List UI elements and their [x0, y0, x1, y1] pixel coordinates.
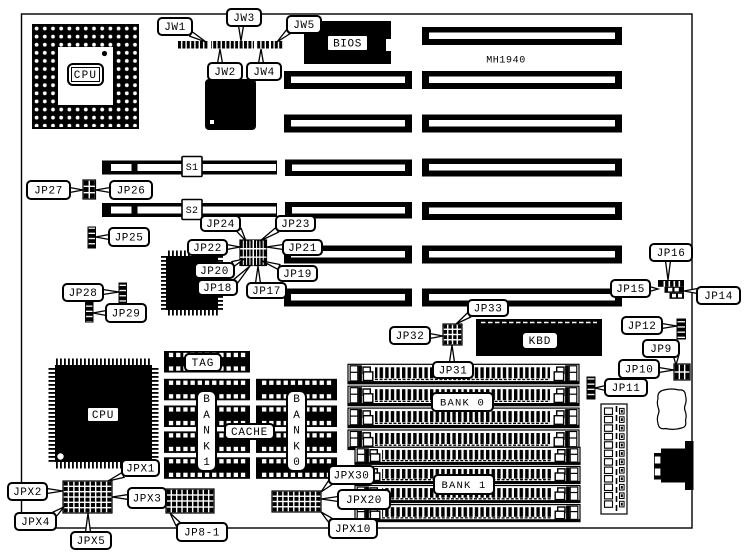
- svg-text:A: A: [203, 410, 210, 422]
- svg-text:JP25: JP25: [115, 233, 144, 245]
- svg-text:BIOS: BIOS: [333, 39, 362, 51]
- svg-text:JP8-1: JP8-1: [184, 528, 220, 540]
- svg-text:S1: S1: [186, 163, 198, 174]
- svg-text:JW4: JW4: [253, 67, 275, 79]
- svg-text:JP22: JP22: [193, 243, 222, 255]
- svg-text:JP24: JP24: [206, 219, 235, 231]
- svg-text:B: B: [203, 394, 210, 406]
- svg-text:JP23: JP23: [281, 219, 310, 231]
- svg-text:TAG: TAG: [192, 358, 215, 370]
- svg-text:0: 0: [293, 457, 300, 469]
- svg-text:N: N: [203, 426, 210, 438]
- svg-text:JP11: JP11: [612, 383, 641, 395]
- svg-text:JP12: JP12: [628, 321, 657, 333]
- svg-text:JPX2: JPX2: [13, 487, 42, 499]
- svg-text:JP15: JP15: [616, 284, 645, 296]
- svg-text:JP20: JP20: [200, 266, 229, 278]
- svg-text:CPU: CPU: [92, 410, 114, 422]
- svg-text:JW5: JW5: [293, 20, 315, 32]
- svg-text:JP32: JP32: [396, 331, 425, 343]
- svg-text:JW3: JW3: [233, 13, 255, 25]
- svg-text:KBD: KBD: [529, 336, 552, 348]
- svg-text:B: B: [293, 394, 300, 406]
- svg-text:JP29: JP29: [112, 309, 141, 321]
- svg-text:JP19: JP19: [283, 269, 312, 281]
- svg-text:JP26: JP26: [117, 186, 146, 198]
- svg-text:JP18: JP18: [203, 283, 232, 295]
- svg-text:K: K: [293, 441, 300, 453]
- svg-text:JP10: JP10: [625, 365, 654, 377]
- svg-text:JP21: JP21: [288, 243, 317, 255]
- svg-text:JPX30: JPX30: [333, 471, 369, 483]
- svg-text:JPX1: JPX1: [126, 464, 155, 476]
- svg-text:N: N: [293, 426, 300, 438]
- svg-text:K: K: [203, 441, 210, 453]
- svg-text:BANK 0: BANK 0: [440, 398, 485, 410]
- svg-text:JPX20: JPX20: [346, 495, 382, 507]
- svg-text:CPU: CPU: [74, 70, 97, 82]
- svg-text:JW2: JW2: [214, 67, 236, 79]
- svg-text:JPX4: JPX4: [21, 517, 50, 529]
- svg-text:JPX10: JPX10: [335, 524, 371, 536]
- svg-text:JP31: JP31: [439, 366, 468, 378]
- svg-text:MH1940: MH1940: [486, 56, 526, 67]
- svg-text:JW1: JW1: [164, 22, 186, 34]
- svg-text:JPX3: JPX3: [133, 494, 162, 506]
- svg-text:1: 1: [203, 457, 210, 469]
- svg-text:CACHE: CACHE: [231, 427, 268, 439]
- svg-text:JP33: JP33: [474, 304, 503, 316]
- svg-text:A: A: [293, 410, 300, 422]
- svg-text:JP16: JP16: [657, 248, 686, 260]
- svg-text:JP14: JP14: [704, 291, 733, 303]
- svg-text:JP27: JP27: [34, 186, 63, 198]
- svg-text:BANK 1: BANK 1: [441, 480, 486, 492]
- svg-text:JPX5: JPX5: [77, 536, 106, 548]
- svg-text:S2: S2: [186, 206, 198, 217]
- svg-text:JP17: JP17: [252, 286, 281, 298]
- svg-text:JP28: JP28: [69, 288, 98, 300]
- svg-text:JP9: JP9: [650, 344, 672, 356]
